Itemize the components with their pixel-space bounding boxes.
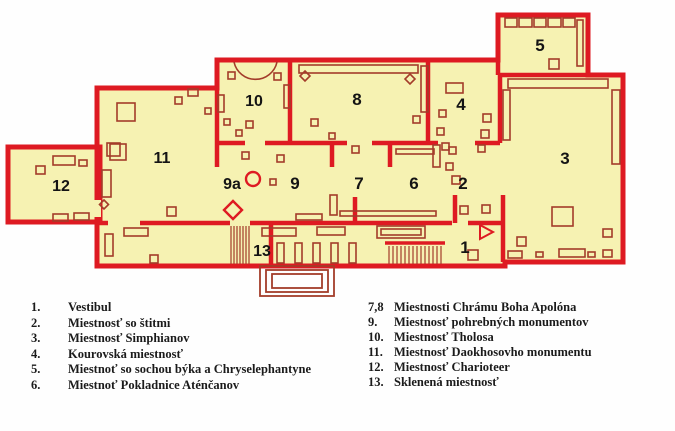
legend-item: 6.Miestnoť Pokladnice Aténčanov xyxy=(31,378,311,394)
legend-number: 3. xyxy=(31,331,68,347)
legend-item: 13.Sklenená miestnosť xyxy=(368,375,592,390)
legend-item: 4.Kourovská miestnosť xyxy=(31,347,311,363)
floor-plan-canvas: 1 2 3 4 5 6 7 8 9 9a 10 11 12 13 xyxy=(0,0,675,300)
legend-item: 11.Miestnosť Daokhosovho monumentu xyxy=(368,345,592,360)
legend-number: 11. xyxy=(368,345,394,360)
legend-item: 3.Miestnosť Simphianov xyxy=(31,331,311,347)
legend-number: 6. xyxy=(31,378,68,394)
room-label-9a: 9a xyxy=(223,176,241,193)
legend-item: 2.Miestnosť so štitmi xyxy=(31,316,311,332)
room-label-6: 6 xyxy=(409,174,418,193)
room-label-1: 1 xyxy=(460,238,469,257)
legend-label: Miestnosť Simphianov xyxy=(68,331,189,345)
room-label-12: 12 xyxy=(52,178,70,195)
legend-label: Miestnoť so sochou býka a Chryselephanty… xyxy=(68,362,311,376)
room-label-8: 8 xyxy=(352,90,361,109)
legend-number: 12. xyxy=(368,360,394,375)
legend-left-column: 1.Vestibul 2.Miestnosť so štitmi 3.Miest… xyxy=(31,300,311,394)
legend-label: Vestibul xyxy=(68,300,111,314)
legend-right-column: 7,8Miestnosti Chrámu Boha Apolóna 9.Mies… xyxy=(368,300,592,391)
legend-item: 12.Miestnosť Charioteer xyxy=(368,360,592,375)
room-label-5: 5 xyxy=(535,36,544,55)
room-label-2: 2 xyxy=(458,174,467,193)
door-opening xyxy=(93,200,101,217)
legend-item: 10.Miestnosť Tholosa xyxy=(368,330,592,345)
building-footprint xyxy=(8,15,623,266)
legend-item: 1.Vestibul xyxy=(31,300,311,316)
room-label-9: 9 xyxy=(290,174,299,193)
legend-label: Miestnosť Daokhosovho monumentu xyxy=(394,345,592,359)
legend-label: Miestnosť pohrebných monumentov xyxy=(394,315,589,329)
room-label-13: 13 xyxy=(253,243,271,260)
legend-item: 5.Miestnoť so sochou býka a Chryselephan… xyxy=(31,362,311,378)
legend-label: Miestnosť Charioteer xyxy=(394,360,510,374)
museum-floor-plan-page: 1 2 3 4 5 6 7 8 9 9a 10 11 12 13 1.Vesti… xyxy=(0,0,675,431)
legend-number: 10. xyxy=(368,330,394,345)
room-label-11: 11 xyxy=(154,150,171,167)
legend-label: Miestnosti Chrámu Boha Apolóna xyxy=(394,300,576,314)
room-label-7: 7 xyxy=(354,174,363,193)
room-label-3: 3 xyxy=(560,149,569,168)
legend-number: 9. xyxy=(368,315,394,330)
legend-label: Miestnosť so štitmi xyxy=(68,316,170,330)
legend-label: Miestnoť Pokladnice Aténčanov xyxy=(68,378,239,392)
room-label-4: 4 xyxy=(456,95,466,114)
legend-number: 2. xyxy=(31,316,68,332)
legend-number: 7,8 xyxy=(368,300,394,315)
legend-number: 5. xyxy=(31,362,68,378)
legend-label: Sklenená miestnosť xyxy=(394,375,499,389)
legend-number: 4. xyxy=(31,347,68,363)
legend-item: 7,8Miestnosti Chrámu Boha Apolóna xyxy=(368,300,592,315)
room-label-10: 10 xyxy=(245,93,263,110)
legend-label: Kourovská miestnosť xyxy=(68,347,183,361)
legend-number: 1. xyxy=(31,300,68,316)
stairs-left xyxy=(231,226,249,264)
legend-number: 13. xyxy=(368,375,394,390)
legend-label: Miestnosť Tholosa xyxy=(394,330,494,344)
entrance-porch xyxy=(260,266,334,296)
legend-item: 9.Miestnosť pohrebných monumentov xyxy=(368,315,592,330)
